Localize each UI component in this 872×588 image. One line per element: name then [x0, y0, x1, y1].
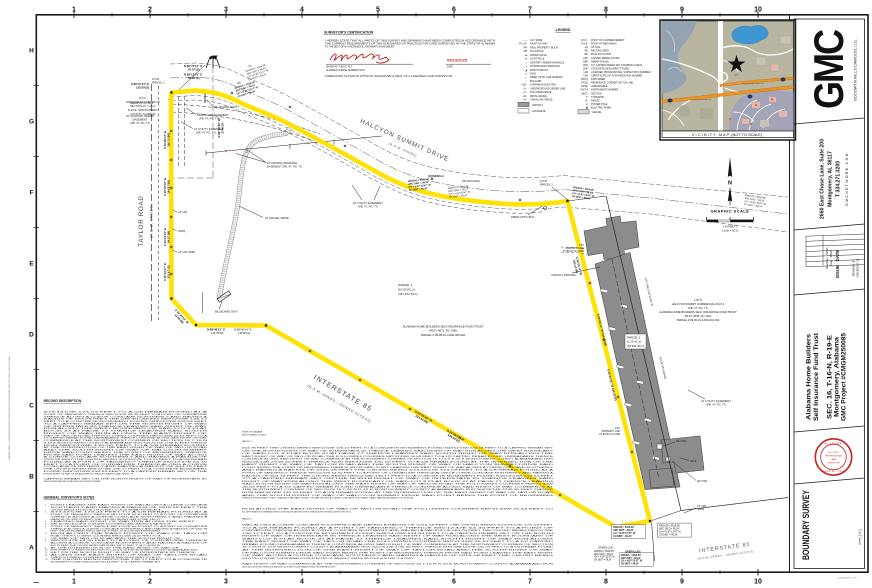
svg-text:PARCEL 1: PARCEL 1 [398, 283, 413, 287]
svg-text:BOUNDARY SURVEY: BOUNDARY SURVEY [801, 490, 811, 560]
svg-text:∅: ∅ [586, 103, 588, 106]
svg-text:4.93’: 4.93’ [579, 245, 584, 247]
svg-text:RANGE: RANGE [591, 99, 600, 102]
svg-text:MONUMENT FOUND N48'54'03W 634.: MONUMENT FOUND N48'54'03W 634.64 FEET TO… [51, 561, 162, 564]
svg-text:METAL FENCE: METAL FENCE [530, 95, 547, 98]
svg-text:–M–: –M– [522, 95, 527, 98]
svg-text:(NO DIAGONAL): (NO DIAGONAL) [462, 180, 480, 183]
svg-text:ON THE NORTH RIGHT OF WAY OF I: ON THE NORTH RIGHT OF WAY OF INTERSTATE … [242, 449, 555, 452]
svg-text:Montgomery, AL 36117: Montgomery, AL 36117 [827, 151, 833, 207]
svg-text:26.63 FEET TO A 1/2 CAPPED REB: 26.63 FEET TO A 1/2 CAPPED REBAR FOUND U… [242, 485, 555, 488]
svg-text:4: 4 [300, 579, 304, 586]
svg-text:INST #: INST # [580, 89, 588, 92]
svg-text:CRF: CRF [583, 57, 589, 60]
svg-text:LANDSCAPE EASEMENT: LANDSCAPE EASEMENT [197, 113, 229, 117]
svg-text:Alabama Home Builders: Alabama Home Builders [806, 333, 813, 420]
svg-text:FIBER OPTIC BOX: FIBER OPTIC BOX [130, 101, 154, 105]
svg-text:6: 6 [452, 7, 456, 14]
svg-text:54.08’(S): 54.08’(S) [188, 76, 200, 80]
svg-text:–S–: –S– [523, 87, 528, 90]
svg-text:–OE–: –OE– [521, 84, 528, 87]
svg-text:BILLBOARD SIGN: BILLBOARD SIGN [214, 105, 236, 109]
svg-text:CH DIST = 99.24’: CH DIST = 99.24’ [659, 534, 678, 537]
svg-text:(OVERALL)(X): (OVERALL)(X) [625, 550, 641, 553]
svg-text:ASPHALT PARKING: ASPHALT PARKING [551, 273, 576, 277]
svg-text:(OVERALL)(X): (OVERALL)(X) [598, 546, 613, 549]
svg-text:RUN ALONG THE EAST RIGHT OF WA: RUN ALONG THE EAST RIGHT OF WAY OF TAYLO… [242, 508, 554, 511]
svg-text:NORTH RIGHT OF WAY OF INTERSTA: NORTH RIGHT OF WAY OF INTERSTATE 85 THEN… [44, 472, 135, 475]
svg-text:RUN N88'44'09E 135.00 FEET TO: RUN N88'44'09E 135.00 FEET TO A 5/8 REBA… [242, 491, 554, 494]
svg-text:RP: RP [524, 46, 528, 49]
svg-text:. ⋅ .: . ⋅ . [520, 111, 523, 113]
svg-text:MONTGOMERY COUNTY: MONTGOMERY COUNTY [242, 435, 267, 437]
svg-text:GENERAL SURVEYOR’S NOTES: GENERAL SURVEYOR’S NOTES [44, 496, 96, 500]
svg-text:ARC DIST = 99.24’: ARC DIST = 99.24’ [621, 557, 641, 560]
svg-text:C: C [29, 402, 34, 409]
svg-text:SITE: SITE [734, 75, 739, 77]
svg-text:9: 9 [680, 7, 684, 14]
svg-text:LICENSED PROFESSIONAL SURVEYOR: LICENSED PROFESSIONAL SURVEYOR’S NUMBER [591, 71, 651, 74]
svg-text:6: 6 [452, 579, 456, 586]
svg-text:(UNR): (UNR) [581, 85, 588, 88]
svg-text:ASPHALT: ASPHALT [532, 104, 543, 107]
svg-text:0.96’: 0.96’ [615, 428, 620, 430]
svg-text:Self Insurance Fund Trust: Self Insurance Fund Trust [813, 332, 820, 421]
svg-text:(10.03 AC.±): (10.03 AC.±) [398, 287, 415, 291]
svg-text:SAID LOT 8 PLAT BOOK 47 AT PAG: SAID LOT 8 PLAT BOOK 47 AT PAGE 77 THENC… [242, 537, 554, 540]
svg-text:(437,074 SF.±): (437,074 SF.±) [398, 292, 418, 296]
svg-text:THENCE LEAVING SAID RIGHT OF W: THENCE LEAVING SAID RIGHT OF WAY RUN ALO… [44, 480, 102, 483]
svg-text:TO BACK OF CURB: TO BACK OF CURB [563, 250, 584, 253]
svg-text:P.O.C.: P.O.C. [581, 39, 588, 42]
svg-text:ACTUAL: ACTUAL [591, 46, 601, 49]
svg-text:KEY PAD: KEY PAD [676, 440, 686, 443]
svg-text:CH = N 87°13’47” W: CH = N 87°13’47” W [621, 560, 643, 563]
svg-text:N 88°40’44” E: N 88°40’44” E [234, 328, 252, 332]
svg-text:FOREGOING IS INVALID WITHOUT S: FOREGOING IS INVALID WITHOUT SIGNATURE &… [325, 75, 452, 78]
svg-text:CH = N 87°13’47” W: CH = N 87°13’47” W [594, 557, 615, 559]
svg-text:SURVEYOR’S CERTIFICATION: SURVEYOR’S CERTIFICATION [324, 31, 374, 35]
svg-text:CONCRETE: CONCRETE [532, 110, 546, 113]
svg-text:I HEREBY STATE THAT ALL PARTS: I HEREBY STATE THAT ALL PARTS OF THIS SU… [325, 40, 495, 43]
svg-text:BOLLARD: BOLLARD [530, 80, 542, 83]
svg-text:(PB. 47, PG. 77): (PB. 47, PG. 77) [130, 121, 150, 125]
svg-text:DRAWING PATH: G:\CMGM250085\SU: DRAWING PATH: G:\CMGM250085\SURVEY\DWG\C… [8, 356, 11, 460]
svg-text:PARCEL 1: PARCEL 1 [152, 81, 165, 85]
svg-text:SECTION: SECTION [591, 92, 602, 95]
svg-text:RIGHT OF WAY RUN ALONG THE WES: RIGHT OF WAY RUN ALONG THE WEST BOUNDARY… [242, 480, 554, 483]
svg-text:SAID RIGHT OF WAY COMMENCE AT: SAID RIGHT OF WAY COMMENCE AT THE NORTHW… [242, 563, 554, 566]
svg-text:T 334.271.3200: T 334.271.3200 [835, 161, 841, 197]
svg-text:15’ GRAVEL DRIVE: 15’ GRAVEL DRIVE [265, 216, 289, 220]
svg-text:←—: ←— [522, 39, 527, 42]
svg-text:CERTIFICATE OF AUTHORIZATION N: CERTIFICATE OF AUTHORIZATION NUMBER [591, 75, 643, 78]
svg-text:231.67’(S): 231.67’(S) [167, 265, 171, 278]
svg-text:CURVATURE THENCE ALONG A CURVE: CURVATURE THENCE ALONG A CURVE CONCAVE N… [242, 529, 554, 532]
svg-text:SANITARY SEWER MANHOLE: SANITARY SEWER MANHOLE [530, 61, 565, 64]
svg-text:UNDERGROUND SEWER LINE: UNDERGROUND SEWER LINE [530, 87, 566, 90]
svg-text:64.97’(M): 64.97’(M) [167, 231, 171, 243]
svg-text:S73'43'57E 173.23 FEET TO A 5/: S73'43'57E 173.23 FEET TO A 5/8 REBAR FO… [242, 557, 414, 560]
svg-text:TO A CAPPED REBAR SET ON THE N: TO A CAPPED REBAR SET ON THE NORTH RIGHT… [242, 477, 555, 480]
svg-text:FIBER OPTIC LINE MARKER: FIBER OPTIC LINE MARKER [530, 76, 563, 79]
svg-text:–O–: –O– [522, 99, 527, 102]
svg-text:IPF: IPF [584, 53, 588, 56]
svg-text:16 T-16-N R-19-E MONTGOMERY CO: 16 T-16-N R-19-E MONTGOMERY COUNTY ALABA… [242, 546, 554, 549]
svg-text:8: 8 [604, 7, 608, 14]
svg-text:EASEMENT: EASEMENT [133, 118, 148, 122]
svg-text:EAST RIGHT OF WAY OF TAYLOR RO: EAST RIGHT OF WAY OF TAYLOR ROAD AND THE… [242, 463, 554, 466]
svg-text:(PB. 47, PG. 77): (PB. 47, PG. 77) [358, 205, 378, 209]
svg-text:164.87’(M): 164.87’(M) [167, 180, 171, 194]
svg-text:CONCRETE MONUMENT FOUND: CONCRETE MONUMENT FOUND [591, 67, 629, 70]
svg-text:(PB. 47, PG. 77): (PB. 47, PG. 77) [706, 403, 726, 407]
svg-text:BILLBOARD SIGN: BILLBOARD SIGN [215, 310, 237, 314]
svg-text:RIGHT-OF-WAY: RIGHT-OF-WAY [530, 43, 548, 46]
svg-text:P.O.C.: P.O.C. [139, 96, 147, 100]
svg-text:CHAIN LINK FENCE: CHAIN LINK FENCE [530, 99, 553, 102]
svg-text:N: N [728, 181, 732, 187]
svg-text:135.00’(S): 135.00’(S) [136, 86, 149, 90]
svg-text:THE EAST RIGHT OF WAY OF TAYLO: THE EAST RIGHT OF WAY OF TAYLOR ROAD THE… [242, 540, 554, 543]
svg-text:54.07’(S): 54.07’(S) [188, 68, 200, 72]
svg-text:WAY ALONG A CURVE CONCAVE SOUT: WAY ALONG A CURVE CONCAVE SOUTHERLY AND … [242, 524, 555, 527]
svg-text:P.O.B.: P.O.B. [152, 77, 160, 81]
svg-text:▦: ▦ [586, 106, 588, 109]
svg-text:(A): (A) [585, 46, 588, 49]
svg-text:SECT.: SECT. [581, 92, 588, 95]
svg-text:(RCS): (RCS) [581, 82, 588, 85]
svg-text:DISTURBED: DISTURBED [591, 78, 605, 81]
svg-text:2: 2 [148, 7, 152, 14]
svg-text:EAST RIGHT OF WAY OF TAYLOR RO: EAST RIGHT OF WAY OF TAYLOR ROAD THE FOL… [242, 455, 554, 458]
svg-text:4: 4 [300, 7, 304, 14]
svg-text:Final 8/3/25: Final 8/3/25 [829, 250, 833, 266]
svg-text:1 inch = 50 ft.: 1 inch = 50 ft. [722, 228, 739, 232]
svg-text:V I C I N I T Y M A P (NOT: V I C I N I T Y M A P (NOT TO SCALE) [692, 132, 763, 137]
svg-text:OF WAY ALONG A CURVE CONCAVE S: OF WAY ALONG A CURVE CONCAVE SOUTHERLY A… [242, 554, 554, 557]
svg-text:KEY PAD: KEY PAD [697, 480, 707, 483]
svg-text:CHECKED BY: SY: CHECKED BY: SY [858, 258, 860, 278]
svg-text:12.: 12. [45, 554, 48, 556]
svg-text:GRAVEL: GRAVEL [592, 111, 602, 114]
svg-text:★: ★ [525, 58, 527, 61]
svg-text:A 1/2 CAPPED REBAR FOUND UNREA: A 1/2 CAPPED REBAR FOUND UNREADABLE THEN… [242, 510, 351, 513]
svg-text:RADIUS = 5916.58’: RADIUS = 5916.58’ [621, 554, 641, 557]
svg-text:B: B [29, 473, 34, 480]
svg-text:166.75’(M): 166.75’(M) [167, 133, 171, 147]
svg-text:10’ UTILITY EASEMENT: 10’ UTILITY EASEMENT [353, 201, 383, 205]
svg-text:RIGHT OF WAY OF INTERSTATE 85: RIGHT OF WAY OF INTERSTATE 85 THENCE LEA… [242, 535, 555, 538]
svg-text:3: 3 [224, 579, 228, 586]
svg-text:LAND: LAND [831, 458, 837, 461]
svg-text:PARCEL 1: PARCEL 1 [242, 440, 253, 443]
svg-text:663.78 FEET THE CHORD BEING N8: 663.78 FEET THE CHORD BEING N89'52'58E 1… [242, 447, 555, 450]
svg-text:PARCEL # 09-05-16-3-000-001.04: PARCEL # 09-05-16-3-000-001.040 [677, 318, 720, 322]
svg-text:RBF: RBF [583, 60, 588, 63]
svg-text:No. 31132: No. 31132 [829, 452, 840, 454]
svg-text:1/2” CAPPED REBAR SET STAMPED: 1/2” CAPPED REBAR SET STAMPED CA#106 [591, 64, 643, 67]
svg-text:CH DIST = 99.24’: CH DIST = 99.24’ [613, 535, 632, 538]
svg-text:10’ UTILITY EASEMENT: 10’ UTILITY EASEMENT [701, 399, 731, 403]
svg-text:△: △ [525, 76, 527, 79]
svg-text:RECORD DESCRIPTION: RECORD DESCRIPTION [44, 399, 82, 403]
svg-text:–/\/–: –/\/– [522, 91, 527, 94]
svg-text:CH DIST = 99.24’: CH DIST = 99.24’ [594, 560, 612, 562]
svg-text:FIBER OPTIC BOX: FIBER OPTIC BOX [511, 215, 535, 219]
svg-text:20’ SANITARY SEWER: 20’ SANITARY SEWER [126, 114, 154, 118]
svg-text:DATE: DATE [447, 66, 453, 69]
svg-text:136.17 FEET TO A CONCRETE MONU: 136.17 FEET TO A CONCRETE MONUMENT FOUND… [242, 532, 554, 535]
svg-text:POINT OF BEGINNING: POINT OF BEGINNING [591, 43, 617, 46]
svg-text:(54,634 SF.±): (54,634 SF.±) [627, 344, 644, 348]
svg-text:RECORD DEED: RECORD DEED [591, 50, 609, 53]
svg-text:CONTINUE ALONG SAID RIGHT OF W: CONTINUE ALONG SAID RIGHT OF WAY COMMENC… [242, 458, 554, 461]
svg-text:GOODWYN MILLS CAWOOD, LLC.: GOODWYN MILLS CAWOOD, LLC. [853, 39, 858, 102]
svg-text:GRAPHIC SCALE: GRAPHIC SCALE [711, 209, 750, 214]
svg-text:LS#: LS# [584, 71, 589, 74]
svg-text:PB: PB [524, 50, 528, 53]
svg-text:(R.O.W. VARIES): (R.O.W. VARIES) [150, 204, 154, 239]
svg-text:PARCEL 2: PARCEL 2 [242, 518, 253, 521]
svg-text:ELECTRIC PANEL: ELECTRIC PANEL [591, 106, 612, 109]
svg-text:(RLPY 2045, PG. 004): (RLPY 2045, PG. 004) [685, 314, 712, 318]
svg-text:8: 8 [604, 579, 608, 586]
svg-text:PLAT BOOK: PLAT BOOK [530, 50, 544, 53]
svg-text:POINT BEING THE POINT OF BEGIN: POINT BEING THE POINT OF BEGINNING THENC… [242, 466, 554, 469]
svg-text:LOT 8: LOT 8 [694, 298, 702, 302]
svg-text:PROPERTY LINE: PROPERTY LINE [566, 248, 585, 250]
svg-text:S00'26'14E 2748.30 FEET THENCE: S00'26'14E 2748.30 FEET THENCE RUN N88'4… [242, 565, 336, 568]
svg-text:TO A 5/8 REBAR FOUND AT A POIN: TO A 5/8 REBAR FOUND AT A POINT OF TANGE… [242, 526, 555, 529]
svg-text:SAID SOUTH RIGHT OF WAY RUN AL: SAID SOUTH RIGHT OF WAY RUN ALONG THE EA… [242, 483, 553, 486]
svg-text:135.06’(S): 135.06’(S) [238, 331, 250, 335]
svg-text:SHAWN M. YUNGO, PLS: SHAWN M. YUNGO, PLS [326, 66, 353, 69]
svg-text:(DIST): (DIST) [581, 78, 588, 81]
svg-text:P.O.B.: P.O.B. [540, 179, 548, 183]
svg-text:TO THE BEST OF MY KNOWLEDGE, I: TO THE BEST OF MY KNOWLEDGE, INFORMATION… [325, 46, 395, 49]
svg-text:N 88°46’21” E: N 88°46’21” E [207, 328, 225, 332]
svg-text:STORM DRAIN MANHOLE: STORM DRAIN MANHOLE [530, 65, 560, 68]
svg-text:◢: ◢ [525, 69, 527, 72]
svg-text:1/2” CRF: 1/2” CRF [178, 212, 188, 214]
svg-text:R.O.W.: R.O.W. [519, 43, 527, 46]
svg-text:T-: T- [586, 96, 588, 99]
svg-text:ALABAMA HOME BUILDERS SELF INS: ALABAMA HOME BUILDERS SELF INSURANCE FUN… [659, 310, 737, 314]
svg-text:THENCE FROM SAID POINT LEAVING: THENCE FROM SAID POINT LEAVING THE EAST … [242, 497, 414, 500]
svg-text:H: H [29, 47, 34, 54]
svg-text:AND THE SOUTH RIGHT OF WAY OF: AND THE SOUTH RIGHT OF WAY OF HALCYON SU… [242, 494, 554, 497]
svg-text:LEGEND: LEGEND [556, 28, 571, 32]
svg-text:POINT OF COMMENCEMENT: POINT OF COMMENCEMENT [591, 39, 625, 42]
svg-text:D: D [29, 331, 34, 338]
svg-text:ISSUE DATE: ISSUE DATE [835, 250, 840, 279]
svg-text:PROPERTY LINE: PROPERTY LINE [602, 431, 621, 433]
svg-text:SHAWN M. YUNGO: SHAWN M. YUNGO [821, 470, 846, 473]
svg-text:AT THE INTERSECTION OF THE EAS: AT THE INTERSECTION OF THE EAST RIGHT OF… [242, 549, 555, 552]
svg-text:REBAR FOUND UNREADABLE THENCE: REBAR FOUND UNREADABLE THENCE CONTINUE A… [242, 543, 554, 546]
svg-text:RADIUS OF 663.78 FEET THE CHOR: RADIUS OF 663.78 FEET THE CHORD BEING N8… [242, 474, 555, 477]
svg-text:7: 7 [528, 7, 532, 14]
svg-text:15’ PRIVATE DRAINAGE: 15’ PRIVATE DRAINAGE [267, 161, 297, 165]
svg-text:SIGN: SIGN [530, 72, 536, 75]
svg-text:(PB. 47, PG. 77): (PB. 47, PG. 77) [199, 117, 219, 121]
svg-text:5: 5 [376, 7, 380, 14]
svg-text:TAYLOR ROAD: TAYLOR ROAD [138, 195, 145, 246]
svg-text:WATER VALVE: WATER VALVE [530, 54, 547, 57]
svg-text:ARC DIST = 99.24’: ARC DIST = 99.24’ [594, 553, 614, 556]
svg-text:1: 1 [72, 7, 76, 14]
svg-text:EASEMENT (PB. 47, PG. 77): EASEMENT (PB. 47, PG. 77) [267, 165, 302, 169]
svg-text:F: F [30, 189, 34, 196]
svg-text:Montgomery, Alabama: Montgomery, Alabama [835, 336, 841, 417]
svg-text:134.75’(M): 134.75’(M) [211, 331, 224, 335]
svg-text:10: 10 [754, 579, 762, 586]
svg-text:S00'26'14E 2748.30 FEET THENCE: S00'26'14E 2748.30 FEET THENCE RUN N88'4… [242, 460, 555, 463]
svg-text:REBAR FOUND: REBAR FOUND [591, 60, 609, 63]
svg-text:9: 9 [680, 579, 684, 586]
svg-text:13.: 13. [45, 559, 48, 561]
svg-text:ALABAMA LICENSE NUMBER 31132: ALABAMA LICENSE NUMBER 31132 [326, 69, 365, 72]
svg-text:ALABAMA: ALABAMA [825, 442, 842, 446]
svg-text:INSTRUMENT NUMBER: INSTRUMENT NUMBER [591, 89, 618, 92]
svg-text:CH DIST = 99.24’: CH DIST = 99.24’ [621, 563, 639, 566]
svg-text:1: 1 [72, 579, 76, 586]
svg-text:OF SAID LOT 8 PLAT BOOK 47 AT: OF SAID LOT 8 PLAT BOOK 47 AT PAGE 77 TH… [242, 452, 555, 455]
svg-text:TO BACK OF CURB: TO BACK OF CURB [599, 433, 620, 436]
svg-text:GUY WIRE: GUY WIRE [530, 39, 543, 42]
svg-text:DRAWN BY: JP: DRAWN BY: JP [853, 259, 856, 276]
svg-text:GMC Project #CMGM250085: GMC Project #CMGM250085 [842, 332, 848, 421]
svg-text:CRS: CRS [583, 64, 589, 67]
svg-text:1/2” CRF (GMM): 1/2” CRF (GMM) [178, 252, 195, 254]
svg-text:AND HAVING A RADIUS OF 5916.58: AND HAVING A RADIUS OF 5916.58 FEET THE … [242, 469, 555, 472]
svg-text:SEC. 16, T-16-N, R-19-E: SEC. 16, T-16-N, R-19-E [828, 335, 834, 419]
svg-text:E: E [29, 260, 34, 267]
svg-text:HOG WIRE FENCE: HOG WIRE FENCE [530, 91, 552, 94]
svg-text:Boundary 9/2/25: Boundary 9/2/25 [825, 247, 829, 269]
svg-text:TOWNSHIP: TOWNSHIP [591, 96, 604, 99]
svg-text:R-: R- [585, 99, 588, 102]
svg-text:10’ UTILITY EASEMENT: 10’ UTILITY EASEMENT [194, 127, 224, 131]
svg-text:R-19-E, MONTGOMERY: R-19-E, MONTGOMERY [128, 108, 158, 112]
svg-text:P.O.B.: P.O.B. [581, 43, 588, 46]
svg-text:FIRE HYDRANT: FIRE HYDRANT [530, 69, 549, 72]
svg-text:G: G [29, 118, 34, 125]
svg-text:1/2” CRF: 1/2” CRF [697, 506, 707, 508]
svg-text:CMGM250085 1 OF 1: CMGM250085 1 OF 1 [838, 578, 859, 580]
svg-text:(GMM): (GMM) [697, 509, 704, 511]
svg-text:5: 5 [376, 579, 380, 586]
svg-text:STATE OF ALABAMA: STATE OF ALABAMA [242, 431, 263, 434]
svg-text:REAL PROPERTY BOOK: REAL PROPERTY BOOK [530, 46, 558, 49]
svg-text:HALCYON SUMMIT COMMERCIAL PLAT: HALCYON SUMMIT COMMERCIAL PLAT 4 [672, 302, 725, 306]
svg-text:⊳: ⊳ [525, 72, 527, 75]
svg-text:PROFESSIONAL: PROFESSIONAL [825, 455, 843, 458]
svg-text:IRON PIN FOUND: IRON PIN FOUND [591, 53, 611, 56]
svg-text:(PB. 47, PG. 77): (PB. 47, PG. 77) [688, 306, 708, 310]
svg-text:SURVEYOR: SURVEYOR [827, 463, 840, 465]
svg-text:10: 10 [754, 7, 762, 14]
svg-text:UNREADABLE: UNREADABLE [591, 85, 608, 88]
svg-text:09/13/2025: 09/13/2025 [447, 58, 468, 63]
svg-text:CA#: CA# [583, 75, 588, 78]
svg-text:(R): (R) [585, 50, 589, 53]
svg-text:POWER POLE: POWER POLE [591, 103, 608, 106]
svg-text:2: 2 [148, 579, 152, 586]
svg-text:A: A [29, 544, 34, 551]
svg-text:(GMM): (GMM) [178, 231, 185, 233]
svg-text:THE NORTHWEST CORNER OF SECTIO: THE NORTHWEST CORNER OF SECTION 16 T-16-… [242, 488, 554, 491]
svg-text:(PB. 47, PG. 77): (PB. 47, PG. 77) [196, 131, 216, 135]
svg-text:3: 3 [224, 7, 228, 14]
svg-text:2660 East Chase Lane, Suite 20: 2660 East Chase Lane, Suite 200 [819, 139, 825, 219]
svg-text:REFERENCE CORNER SET ON LINE: REFERENCE CORNER SET ON LINE [591, 82, 633, 85]
svg-text:PARCEL # 09-05-16-3-000-005.00: PARCEL # 09-05-16-3-000-005.000 [421, 333, 466, 337]
svg-text:OF HALCYON SUMMIT DRIVE SAID P: OF HALCYON SUMMIT DRIVE SAID POINT BEING… [242, 551, 555, 554]
svg-text:OVERHEAD ELECTRIC: OVERHEAD ELECTRIC [530, 84, 557, 87]
svg-text:GATE: GATE [690, 460, 697, 463]
svg-text:POINT OF TANGENCY THENCE S85'1: POINT OF TANGENCY THENCE S85'12'47E 64.3… [242, 472, 554, 475]
svg-text:THE CURRENT REQUIREMENTS OF TH: THE CURRENT REQUIREMENTS OF THE STANDARD… [325, 43, 496, 46]
svg-text:sheet 1 of 1: sheet 1 of 1 [857, 529, 861, 545]
svg-text:GMCNETWORK.COM: GMCNETWORK.COM [845, 152, 849, 206]
svg-text:7: 7 [528, 579, 532, 586]
svg-text:GMC: GMC [807, 29, 853, 109]
svg-text:RADIUS = 5916.58’: RADIUS = 5916.58’ [594, 550, 614, 553]
svg-text:PARCEL 2: PARCEL 2 [540, 183, 553, 187]
svg-text:(1)(OVERALL): (1)(OVERALL) [428, 175, 444, 178]
svg-text:CAPPED REBAR FOUND: CAPPED REBAR FOUND [591, 57, 620, 60]
svg-text:CMF: CMF [583, 67, 589, 70]
svg-text:LIGHT POLE: LIGHT POLE [530, 58, 545, 61]
